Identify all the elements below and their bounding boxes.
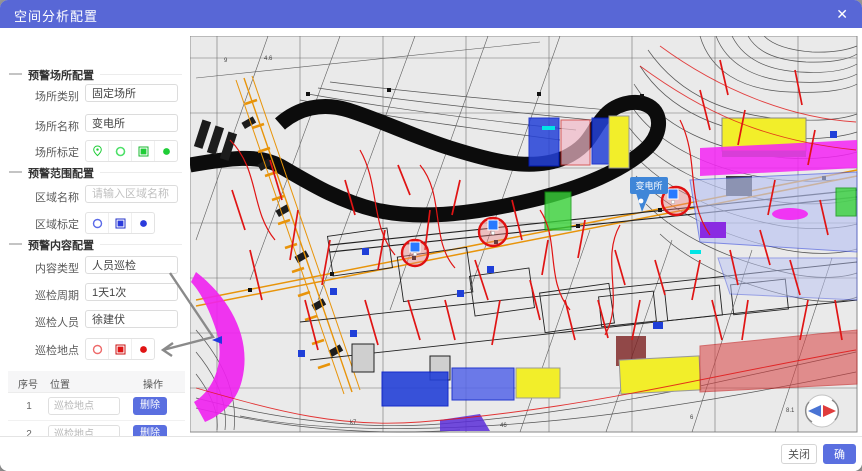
- substation-pin-label: 变电所: [635, 180, 662, 191]
- col-action: 操作: [143, 376, 163, 391]
- position-input[interactable]: [48, 397, 120, 415]
- confirm-button[interactable]: 确定: [823, 444, 856, 464]
- patrol-point-square-icon[interactable]: [109, 339, 132, 359]
- close-icon[interactable]: ✕: [836, 5, 848, 23]
- col-no: 序号: [18, 376, 38, 391]
- content-type-input[interactable]: [85, 256, 178, 274]
- place-name-label: 场所名称: [35, 118, 79, 134]
- area-mark-circle-icon[interactable]: [86, 213, 109, 233]
- area-mark-square-icon[interactable]: [109, 213, 132, 233]
- area-name-input[interactable]: [85, 185, 178, 203]
- section-title-place: 预警场所配置: [28, 67, 94, 83]
- dialog-footer: 关闭 确定: [0, 436, 862, 471]
- section-dash: [9, 73, 22, 75]
- place-mark-dot-icon[interactable]: [155, 141, 177, 161]
- area-name-label: 区域名称: [35, 189, 79, 205]
- place-name-input[interactable]: [85, 114, 178, 132]
- section-dash: [9, 171, 22, 173]
- table-row: 1 删除: [8, 393, 185, 421]
- row-index: 1: [22, 401, 36, 412]
- patrol-point-group: [85, 338, 155, 360]
- delete-button[interactable]: 删除: [133, 397, 167, 415]
- section-line: [100, 172, 182, 173]
- spatial-analysis-dialog: 空间分析配置 ✕ 预警场所配置 场所类别 场所名称 场所标定: [0, 0, 862, 471]
- patrol-point-label: 巡检地点: [35, 342, 79, 358]
- section-dash: [9, 243, 22, 245]
- compass-control[interactable]: [806, 395, 839, 427]
- svg-text:4.6: 4.6: [264, 56, 273, 62]
- area-mark-group: [85, 212, 155, 234]
- close-button[interactable]: 关闭: [781, 444, 817, 464]
- area-mark-dot-icon[interactable]: [132, 213, 154, 233]
- section-title-range: 预警范围配置: [28, 165, 94, 181]
- inspection-circle[interactable]: [402, 240, 428, 266]
- section-place: 预警场所配置: [0, 67, 190, 81]
- place-mark-circle-icon[interactable]: [109, 141, 132, 161]
- section-line: [100, 244, 182, 245]
- site-map-svg[interactable]: 变电所 4.6 k7 46 6 8.1 9: [190, 36, 858, 433]
- section-title-content: 预警内容配置: [28, 237, 94, 253]
- place-mark-pin-icon[interactable]: [86, 141, 109, 161]
- place-mark-square-icon[interactable]: [132, 141, 155, 161]
- svg-text:46: 46: [500, 423, 507, 429]
- svg-text:k7: k7: [350, 420, 357, 426]
- place-category-label: 场所类别: [35, 88, 79, 104]
- dialog-title: 空间分析配置: [14, 6, 98, 25]
- patrol-point-circle-icon[interactable]: [86, 339, 109, 359]
- svg-text:8.1: 8.1: [786, 408, 795, 414]
- patrol-cycle-label: 巡检周期: [35, 287, 79, 303]
- place-category-input[interactable]: [85, 84, 178, 102]
- patrol-point-dot-icon[interactable]: [132, 339, 154, 359]
- site-map-area[interactable]: 变电所 4.6 k7 46 6 8.1 9: [190, 36, 858, 433]
- table-header: 序号 位置 操作: [8, 371, 185, 393]
- patrol-cycle-input[interactable]: [85, 283, 178, 301]
- table-row: 2 删除: [8, 421, 185, 437]
- place-mark-label: 场所标定: [35, 144, 79, 160]
- config-panel: 预警场所配置 场所类别 场所名称 场所标定 预警范围配置: [0, 28, 190, 437]
- area-mark-label: 区域标定: [35, 216, 79, 232]
- section-line: [100, 74, 182, 75]
- patrol-person-input[interactable]: [85, 310, 178, 328]
- patrol-points-table: 序号 位置 操作 1 删除 2 删除 3 删除: [8, 371, 185, 437]
- section-range: 预警范围配置: [0, 165, 190, 179]
- place-mark-group: [85, 140, 178, 162]
- dialog-titlebar: 空间分析配置 ✕: [0, 0, 862, 28]
- col-position: 位置: [50, 376, 70, 391]
- inspection-circle[interactable]: [479, 218, 507, 246]
- content-type-label: 内容类型: [35, 260, 79, 276]
- patrol-person-label: 巡检人员: [35, 314, 79, 330]
- section-content: 预警内容配置: [0, 237, 190, 251]
